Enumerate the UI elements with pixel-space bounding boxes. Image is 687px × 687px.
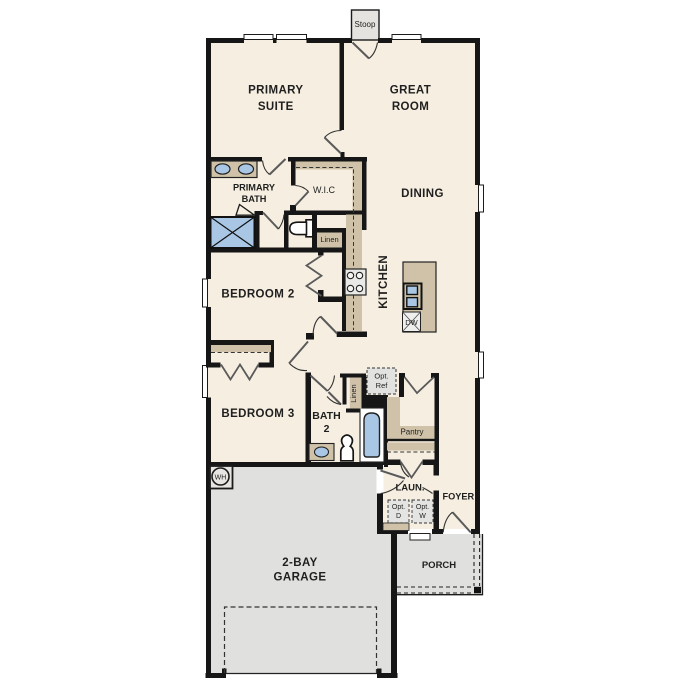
- svg-text:W: W: [419, 513, 426, 520]
- svg-text:BEDROOM 2: BEDROOM 2: [221, 289, 294, 301]
- svg-text:KITCHEN: KITCHEN: [378, 255, 390, 309]
- svg-text:BATH: BATH: [312, 410, 340, 422]
- svg-text:GREAT: GREAT: [390, 85, 431, 97]
- svg-text:GARAGE: GARAGE: [274, 572, 327, 584]
- svg-text:PORCH: PORCH: [422, 560, 456, 571]
- svg-text:Pantry: Pantry: [400, 428, 423, 437]
- svg-text:W.I.C: W.I.C: [313, 185, 335, 195]
- svg-text:Linen: Linen: [320, 235, 338, 244]
- svg-text:2-BAY: 2-BAY: [282, 557, 317, 569]
- svg-text:Stoop: Stoop: [355, 20, 376, 29]
- svg-text:Opt.: Opt.: [416, 504, 429, 511]
- svg-text:WH: WH: [215, 475, 227, 482]
- svg-text:FOYER: FOYER: [442, 492, 474, 502]
- svg-text:2: 2: [324, 423, 330, 435]
- svg-text:DW: DW: [405, 318, 418, 327]
- svg-text:Opt.: Opt.: [374, 372, 388, 381]
- svg-text:LAUN.: LAUN.: [395, 483, 424, 494]
- svg-text:BATH: BATH: [242, 194, 267, 204]
- svg-text:ROOM: ROOM: [392, 101, 429, 113]
- svg-text:PRIMARY: PRIMARY: [233, 183, 275, 193]
- svg-text:Ref: Ref: [376, 381, 389, 390]
- svg-text:Linen: Linen: [349, 384, 358, 402]
- svg-text:BEDROOM 3: BEDROOM 3: [221, 408, 294, 420]
- svg-text:D: D: [396, 513, 401, 520]
- svg-text:PRIMARY: PRIMARY: [248, 85, 303, 97]
- svg-text:DINING: DINING: [401, 188, 444, 200]
- svg-text:SUITE: SUITE: [258, 101, 294, 113]
- svg-text:Opt.: Opt.: [392, 504, 405, 511]
